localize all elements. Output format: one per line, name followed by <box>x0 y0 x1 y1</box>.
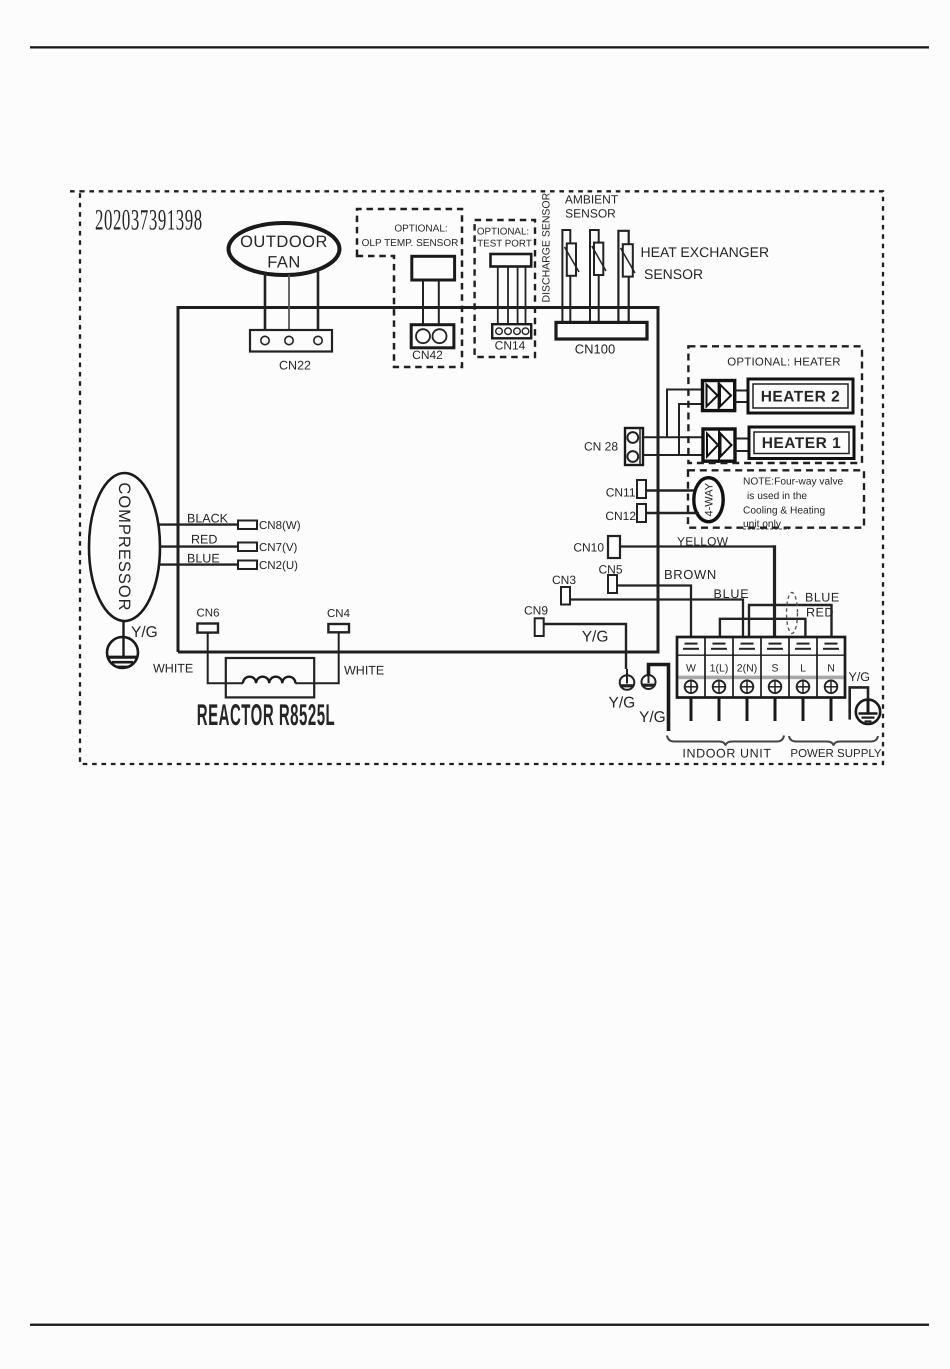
svg-text:2(N): 2(N) <box>737 663 757 675</box>
svg-text:CN6: CN6 <box>196 608 219 620</box>
svg-text:BLACK: BLACK <box>187 512 229 526</box>
svg-text:CN5: CN5 <box>598 563 622 577</box>
svg-text:BROWN: BROWN <box>664 567 717 582</box>
svg-text:DISCHARGE SENSOR: DISCHARGE SENSOR <box>541 192 553 302</box>
svg-text:L: L <box>800 663 806 675</box>
svg-text:WHITE: WHITE <box>344 664 384 678</box>
svg-text:OPTIONAL:: OPTIONAL: <box>394 224 447 235</box>
svg-text:NOTE:Four-way valve: NOTE:Four-way valve <box>743 477 844 488</box>
svg-text:Y/G: Y/G <box>582 629 609 646</box>
svg-text:OLP TEMP. SENSOR: OLP TEMP. SENSOR <box>362 238 459 249</box>
svg-text:HEATER 1: HEATER 1 <box>762 435 842 452</box>
svg-text:BLUE: BLUE <box>805 591 840 605</box>
svg-text:is used in the: is used in the <box>747 491 807 502</box>
svg-text:CN100: CN100 <box>575 342 615 357</box>
svg-text:CN4: CN4 <box>327 608 351 620</box>
svg-text:CN11: CN11 <box>606 486 636 500</box>
svg-text:BLUE: BLUE <box>714 587 750 601</box>
svg-text:OUTDOOR: OUTDOOR <box>240 233 328 251</box>
svg-text:OPTIONAL: HEATER: OPTIONAL: HEATER <box>727 357 841 369</box>
svg-text:CN10: CN10 <box>573 541 604 555</box>
svg-text:W: W <box>686 663 696 675</box>
svg-text:CN22: CN22 <box>279 359 311 373</box>
svg-text:OPTIONAL:: OPTIONAL: <box>477 226 529 237</box>
svg-text:AMBIENT: AMBIENT <box>565 193 619 207</box>
svg-text:Y/G: Y/G <box>849 670 871 684</box>
svg-text:CN12: CN12 <box>605 509 636 523</box>
svg-text:INDOOR UNIT: INDOOR UNIT <box>682 747 771 761</box>
svg-text:1(L): 1(L) <box>710 663 729 675</box>
svg-text:HEAT EXCHANGER: HEAT EXCHANGER <box>641 244 770 260</box>
svg-text:POWER SUPPLY: POWER SUPPLY <box>790 748 881 760</box>
svg-text:SENSOR: SENSOR <box>565 207 616 221</box>
svg-text:CN 28: CN 28 <box>584 440 618 454</box>
svg-text:CN8(W): CN8(W) <box>259 520 301 532</box>
svg-text:CN42: CN42 <box>412 348 443 362</box>
svg-text:REACTOR R8525L: REACTOR R8525L <box>197 699 335 732</box>
svg-text:Y/G: Y/G <box>609 695 636 712</box>
svg-text:COMPRESSOR: COMPRESSOR <box>115 482 133 611</box>
svg-text:Y/G: Y/G <box>639 709 666 726</box>
svg-text:CN9: CN9 <box>524 604 548 618</box>
svg-text:FAN: FAN <box>267 254 301 272</box>
svg-text:4-WAY: 4-WAY <box>704 482 716 516</box>
svg-text:CN14: CN14 <box>495 339 526 353</box>
svg-text:WHITE: WHITE <box>153 662 193 676</box>
svg-text:N: N <box>827 663 835 675</box>
svg-text:SENSOR: SENSOR <box>644 266 703 282</box>
svg-text:202037391398: 202037391398 <box>95 205 203 237</box>
svg-text:CN7(V): CN7(V) <box>259 542 298 554</box>
svg-text:BLUE: BLUE <box>187 552 220 566</box>
svg-text:unit only: unit only <box>743 519 782 530</box>
svg-text:Cooling & Heating: Cooling & Heating <box>743 506 825 517</box>
svg-text:RED: RED <box>806 606 834 620</box>
svg-text:TEST PORT: TEST PORT <box>477 238 532 249</box>
svg-text:S: S <box>771 663 778 675</box>
svg-text:Y/G: Y/G <box>131 624 158 641</box>
svg-text:CN2(U): CN2(U) <box>259 560 298 572</box>
svg-text:YELLOW: YELLOW <box>677 535 729 549</box>
svg-text:HEATER 2: HEATER 2 <box>761 389 841 406</box>
svg-text:RED: RED <box>191 533 217 547</box>
svg-text:CN3: CN3 <box>552 573 576 587</box>
